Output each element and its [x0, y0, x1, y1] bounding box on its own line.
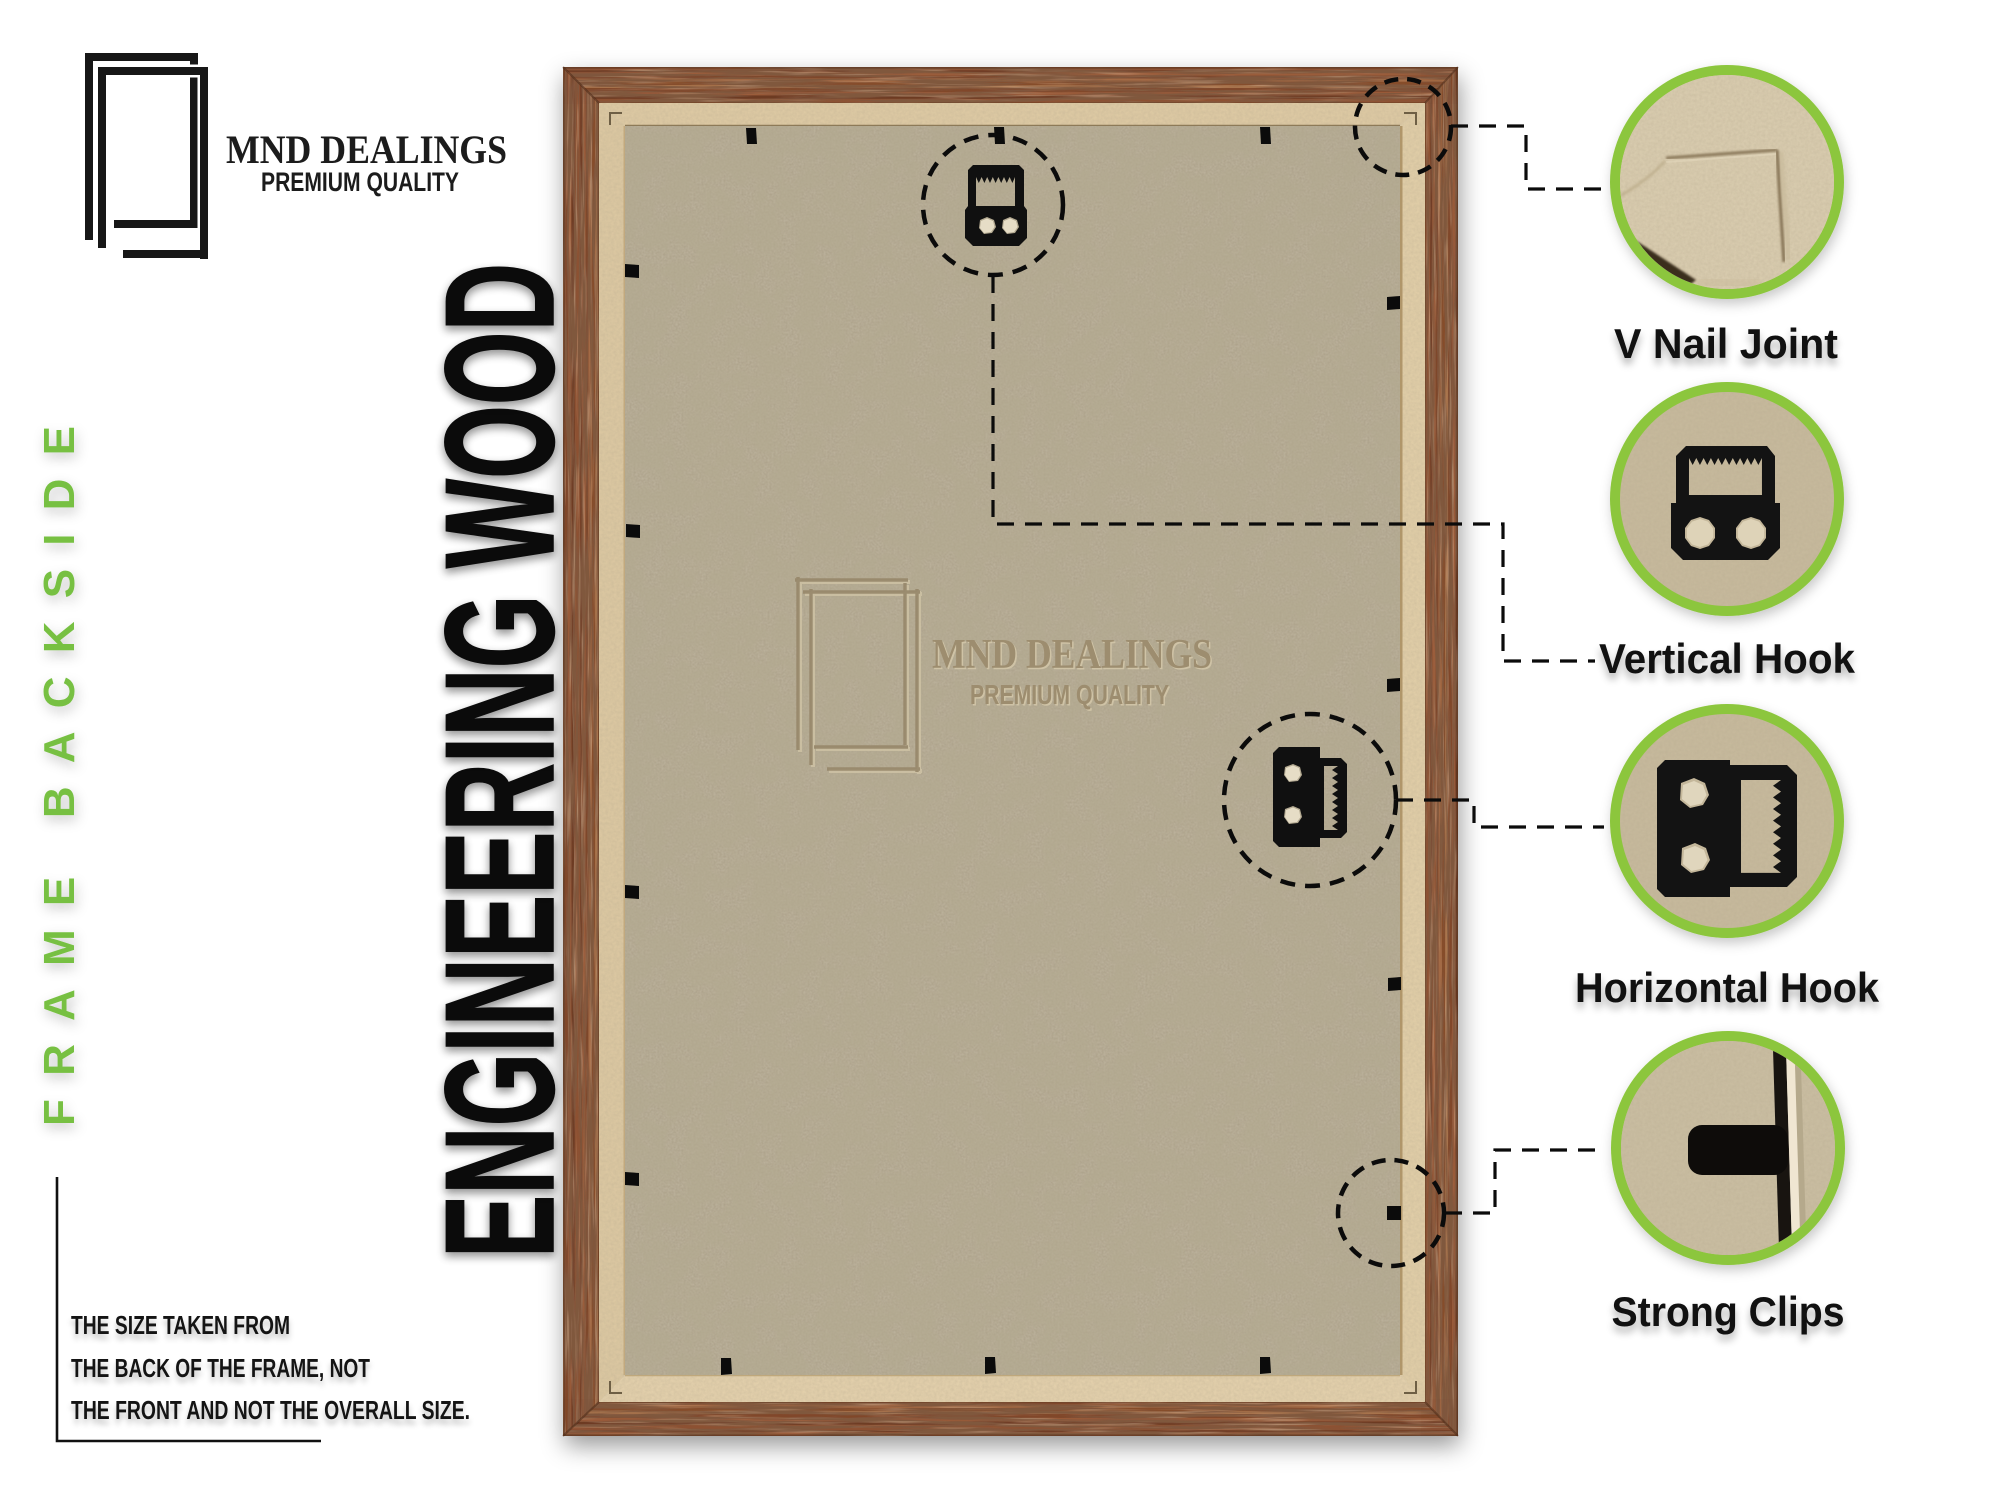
svg-text:PREMIUM QUALITY: PREMIUM QUALITY — [970, 679, 1169, 710]
svg-text:ENGINEERING WOOD: ENGINEERING WOOD — [413, 263, 586, 1258]
svg-text:PREMIUM QUALITY: PREMIUM QUALITY — [261, 167, 459, 197]
svg-text:Horizontal Hook: Horizontal Hook — [1575, 964, 1880, 1011]
svg-text:THE SIZE TAKEN FROM: THE SIZE TAKEN FROM — [71, 1310, 290, 1340]
svg-text:MND DEALINGS: MND DEALINGS — [226, 127, 507, 172]
svg-text:MND DEALINGS: MND DEALINGS — [932, 632, 1212, 678]
svg-text:Strong Clips: Strong Clips — [1612, 1288, 1845, 1335]
svg-text:THE FRONT AND NOT THE OVERALL: THE FRONT AND NOT THE OVERALL SIZE. — [71, 1395, 470, 1425]
svg-text:Vertical Hook: Vertical Hook — [1599, 635, 1856, 682]
svg-text:FRAME BACKSIDE: FRAME BACKSIDE — [35, 426, 84, 1126]
svg-text:THE BACK OF THE FRAME, NOT: THE BACK OF THE FRAME, NOT — [71, 1353, 370, 1383]
svg-text:V Nail Joint: V Nail Joint — [1614, 320, 1838, 367]
